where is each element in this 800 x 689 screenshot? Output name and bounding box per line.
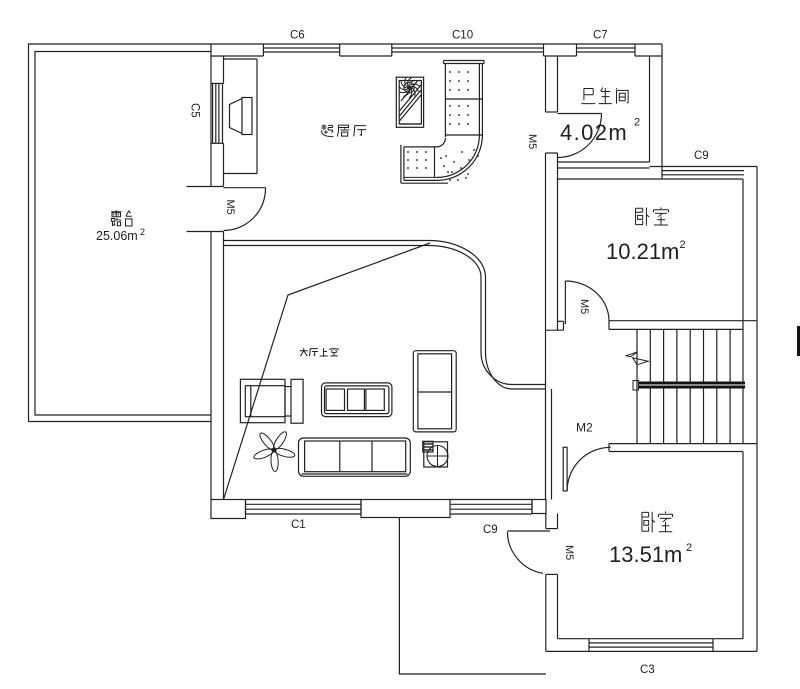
svg-text:C9: C9 [483, 524, 498, 536]
svg-text:M2: M2 [576, 421, 593, 435]
svg-text:C3: C3 [640, 664, 655, 676]
svg-text:C6: C6 [290, 30, 305, 42]
svg-text:M5: M5 [224, 200, 236, 215]
svg-text:4.02m: 4.02m [560, 120, 628, 145]
svg-text:M5: M5 [563, 545, 575, 560]
svg-text:25.06m: 25.06m [96, 229, 138, 243]
svg-text:2: 2 [680, 239, 686, 251]
svg-text:C1: C1 [291, 519, 306, 531]
svg-text:13.51m: 13.51m [609, 542, 682, 567]
svg-text:10.21m: 10.21m [606, 239, 679, 264]
svg-text:2: 2 [140, 227, 145, 237]
svg-text:C7: C7 [593, 30, 608, 42]
svg-text:2: 2 [686, 542, 692, 554]
svg-text:C10: C10 [452, 30, 473, 42]
svg-text:M5: M5 [526, 134, 538, 149]
svg-text:C5: C5 [189, 103, 201, 118]
svg-text:M5: M5 [578, 299, 590, 314]
svg-text:C9: C9 [694, 150, 709, 162]
svg-text:2: 2 [634, 117, 640, 129]
